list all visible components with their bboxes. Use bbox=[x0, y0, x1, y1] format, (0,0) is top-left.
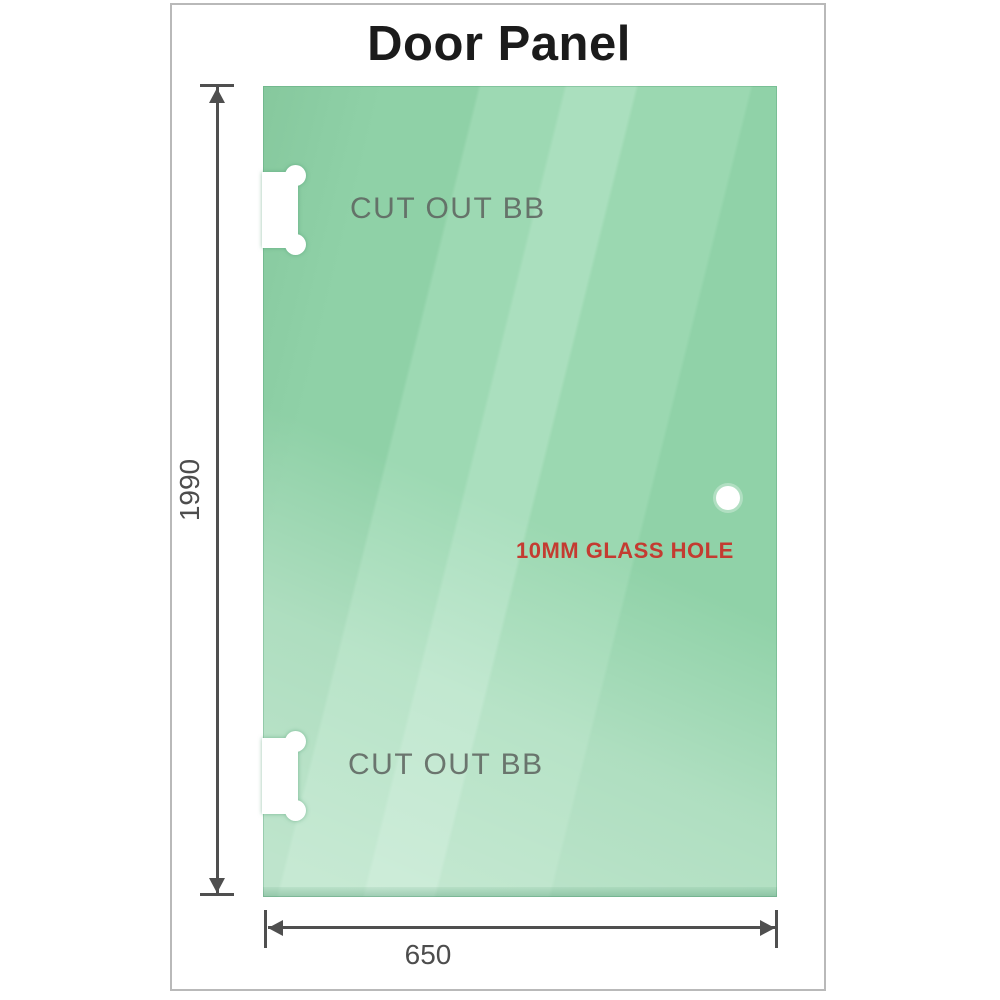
cutout-relief-circle bbox=[285, 800, 306, 821]
height-dim-arrow-down-icon bbox=[209, 878, 225, 893]
glass-hole bbox=[716, 486, 740, 510]
width-dim-arrow-left-icon bbox=[268, 920, 283, 936]
cutout-bottom-label: CUT OUT BB bbox=[348, 748, 544, 782]
cutout-relief-circle bbox=[285, 234, 306, 255]
width-dim-line bbox=[268, 926, 775, 929]
height-dim-arrow-up-icon bbox=[209, 88, 225, 103]
door-panel-diagram: Door Panel CUT OUT BB CUT OUT BB 10MM GL… bbox=[0, 0, 1000, 1000]
height-dim-tick-bottom bbox=[200, 893, 234, 896]
height-dim-label: 1990 bbox=[175, 450, 205, 530]
cutout-relief-circle bbox=[285, 731, 306, 752]
page-title: Door Panel bbox=[170, 16, 828, 72]
hinge-cutout-bottom bbox=[262, 738, 307, 814]
height-dim-line bbox=[216, 87, 219, 894]
cutout-top-label: CUT OUT BB bbox=[350, 192, 546, 226]
width-dim-tick-right bbox=[775, 910, 778, 948]
width-dim-tick-left bbox=[264, 910, 267, 948]
width-dim-arrow-right-icon bbox=[760, 920, 775, 936]
width-dim-label: 650 bbox=[388, 939, 468, 971]
cutout-relief-circle bbox=[285, 165, 306, 186]
hinge-cutout-top bbox=[262, 172, 307, 248]
glass-hole-label: 10MM GLASS HOLE bbox=[516, 538, 734, 564]
height-dim-tick-top bbox=[200, 84, 234, 87]
